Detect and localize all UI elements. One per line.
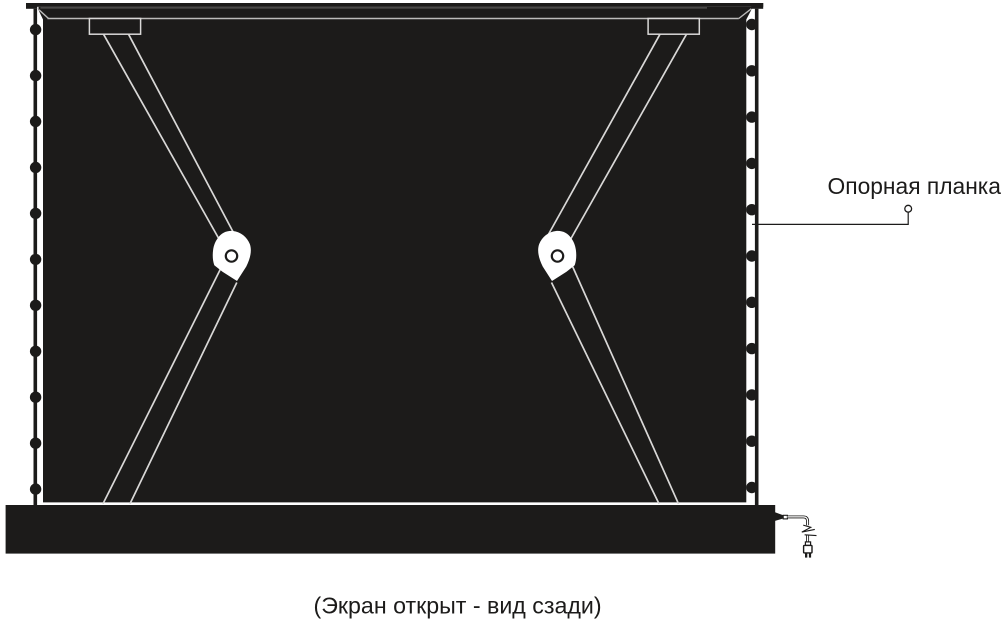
svg-text:Опорная планка: Опорная планка bbox=[828, 173, 1002, 199]
svg-text:(Экран открыт - вид сзади): (Экран открыт - вид сзади) bbox=[314, 592, 602, 618]
